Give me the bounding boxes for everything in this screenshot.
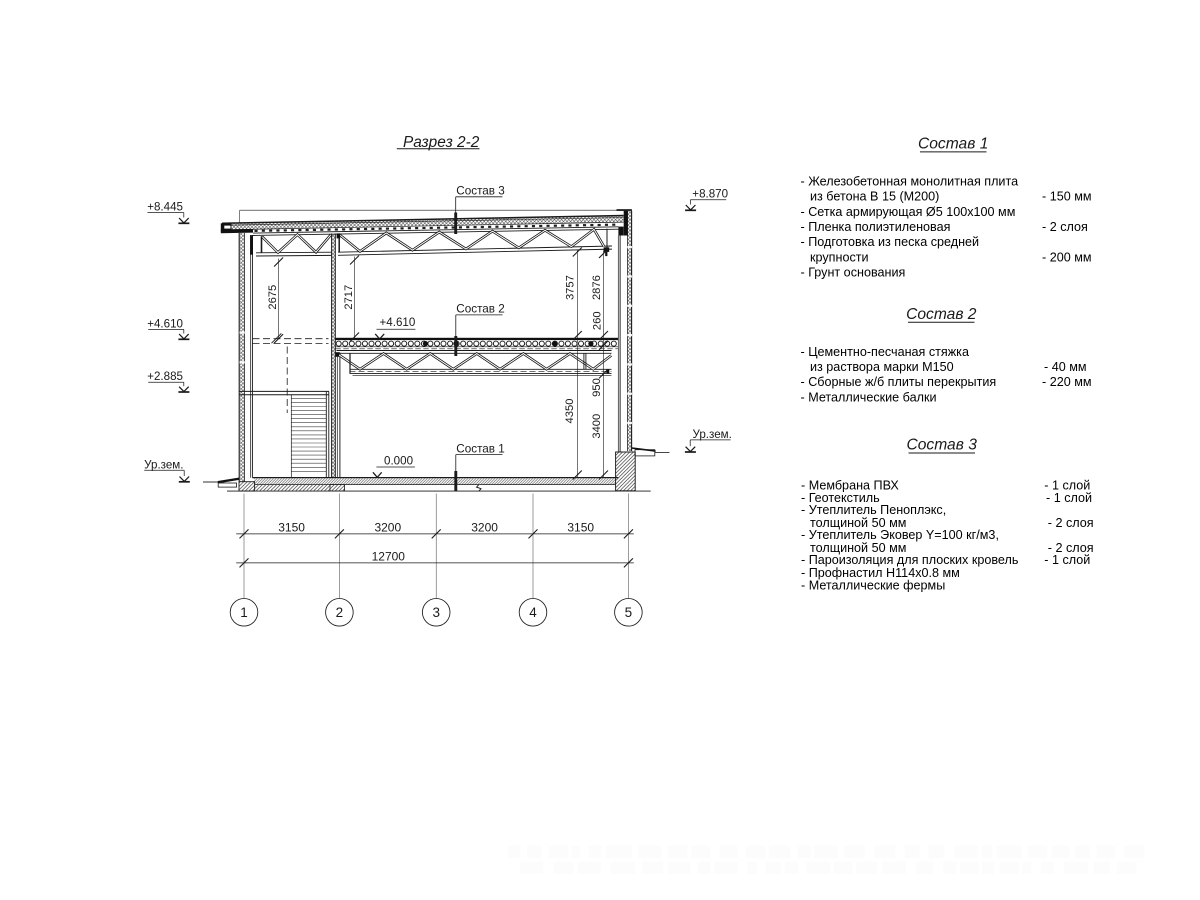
svg-text:3: 3 bbox=[432, 605, 440, 620]
svg-text:крупности: крупности bbox=[810, 250, 869, 264]
svg-text:+4.610: +4.610 bbox=[147, 317, 183, 330]
svg-text:Состав 1: Состав 1 bbox=[918, 136, 988, 153]
svg-text:- Сборные ж/б плиты перекрытия: - Сборные ж/б плиты перекрытия bbox=[801, 375, 997, 389]
svg-text:- Металлические фермы: - Металлические фермы bbox=[801, 578, 945, 592]
svg-text:2876: 2876 bbox=[591, 275, 603, 300]
svg-text:- Утеплитель Пеноплэкс,: - Утеплитель Пеноплэкс, bbox=[801, 503, 946, 517]
svg-text:- Пленка полиэтиленовая: - Пленка полиэтиленовая bbox=[801, 220, 951, 234]
svg-text:- Металлические балки: - Металлические балки bbox=[801, 390, 937, 404]
svg-text:- 1 слой: - 1 слой bbox=[1044, 553, 1090, 567]
svg-text:- 1 слой: - 1 слой bbox=[1046, 491, 1092, 505]
svg-text:- 220 мм: - 220 мм bbox=[1042, 375, 1092, 389]
svg-text:- 200 мм: - 200 мм bbox=[1042, 250, 1092, 264]
svg-text:- 2 слоя: - 2 слоя bbox=[1048, 516, 1094, 530]
svg-text:950: 950 bbox=[591, 378, 603, 397]
svg-text:5: 5 bbox=[625, 605, 633, 620]
svg-text:- Сетка армирующая Ø5 100х100: - Сетка армирующая Ø5 100х100 мм bbox=[801, 205, 1016, 219]
svg-text:2: 2 bbox=[336, 605, 344, 620]
svg-text:4350: 4350 bbox=[564, 399, 576, 424]
svg-text:Разрез 2-2: Разрез 2-2 bbox=[403, 134, 480, 151]
svg-text:- Пароизоляция для плоских кро: - Пароизоляция для плоских кровель bbox=[801, 553, 1019, 567]
svg-text:- Грунт основания: - Грунт основания bbox=[801, 266, 906, 280]
svg-text:Состав 2: Состав 2 bbox=[906, 306, 977, 323]
svg-text:Ур.зем.: Ур.зем. bbox=[144, 458, 183, 471]
svg-text:- 40 мм: - 40 мм bbox=[1044, 360, 1087, 374]
svg-text:из бетона В 15 (М200): из бетона В 15 (М200) bbox=[810, 190, 939, 204]
svg-text:Состав 2: Состав 2 bbox=[456, 303, 504, 316]
svg-text:+2.885: +2.885 bbox=[147, 370, 183, 383]
svg-text:- 150 мм: - 150 мм bbox=[1042, 190, 1092, 204]
svg-text:+8.445: +8.445 bbox=[147, 201, 183, 214]
svg-text:12700: 12700 bbox=[372, 549, 406, 563]
svg-text:Ур.зем.: Ур.зем. bbox=[693, 428, 732, 441]
svg-text:+4.610: +4.610 bbox=[380, 316, 416, 329]
svg-text:3200: 3200 bbox=[471, 520, 498, 534]
svg-text:3150: 3150 bbox=[567, 520, 594, 534]
svg-text:- 2 слоя: - 2 слоя bbox=[1042, 220, 1088, 234]
svg-text:из раствора марки М150: из раствора марки М150 bbox=[810, 360, 954, 374]
svg-text:3200: 3200 bbox=[374, 520, 401, 534]
svg-text:- Подготовка из песка средней: - Подготовка из песка средней bbox=[801, 235, 980, 249]
svg-text:4: 4 bbox=[529, 605, 537, 620]
svg-text:Состав 3: Состав 3 bbox=[907, 437, 978, 454]
svg-text:3757: 3757 bbox=[565, 275, 577, 300]
svg-text:- Цементно-песчаная стяжка: - Цементно-песчаная стяжка bbox=[801, 345, 969, 359]
svg-text:0.000: 0.000 bbox=[384, 455, 413, 468]
svg-text:3150: 3150 bbox=[278, 520, 305, 534]
svg-text:2717: 2717 bbox=[343, 285, 355, 310]
svg-text:Состав 1: Состав 1 bbox=[456, 442, 504, 455]
svg-text:3400: 3400 bbox=[591, 414, 603, 439]
svg-text:2675: 2675 bbox=[267, 285, 279, 310]
svg-text:- Железобетонная монолитная п: - Железобетонная монолитная плита bbox=[801, 174, 1019, 188]
svg-text:Состав 3: Состав 3 bbox=[456, 185, 504, 198]
svg-text:260: 260 bbox=[591, 311, 603, 330]
svg-text:1: 1 bbox=[240, 605, 248, 620]
svg-text:+8.870: +8.870 bbox=[692, 188, 728, 201]
